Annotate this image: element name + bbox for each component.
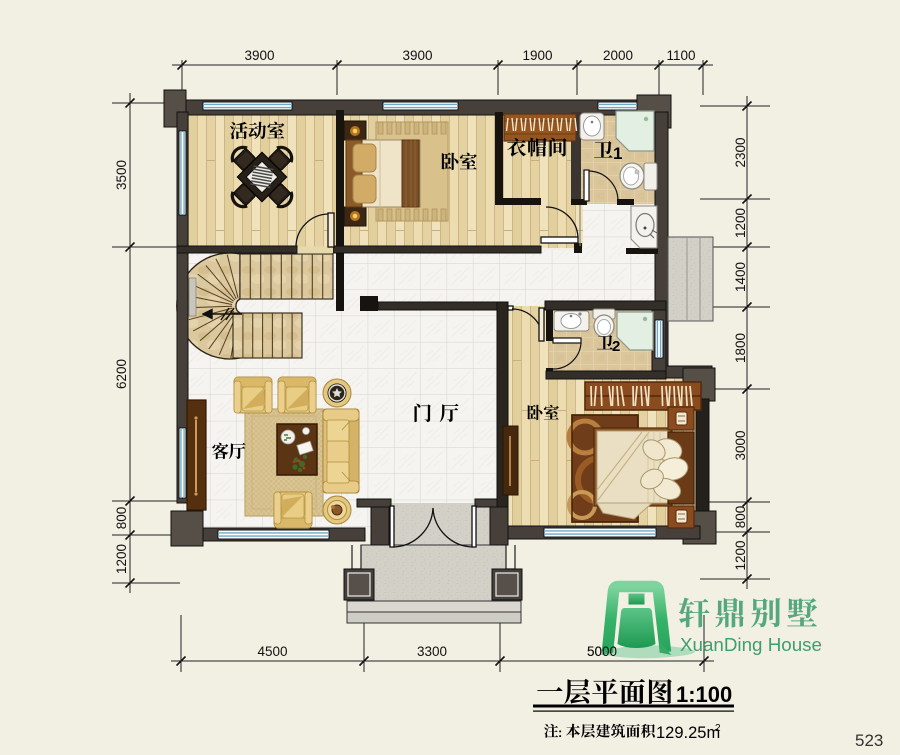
svg-text::: : (558, 725, 562, 740)
svg-text:1200: 1200 (733, 540, 748, 570)
svg-text:6200: 6200 (114, 359, 129, 389)
svg-text:800: 800 (733, 506, 748, 529)
svg-text:2300: 2300 (733, 137, 748, 167)
svg-text:2: 2 (715, 723, 721, 734)
svg-text:1400: 1400 (733, 262, 748, 292)
svg-text:3000: 3000 (733, 430, 748, 460)
svg-text:129.25m: 129.25m (656, 724, 720, 742)
svg-text:1200: 1200 (114, 544, 129, 574)
svg-text:XuanDing House: XuanDing House (680, 634, 822, 655)
svg-text:1100: 1100 (666, 48, 695, 63)
svg-text:2000: 2000 (603, 48, 633, 63)
svg-text:800: 800 (114, 507, 129, 530)
svg-text:1200: 1200 (733, 208, 748, 238)
svg-text:3300: 3300 (417, 644, 447, 659)
svg-text:4500: 4500 (257, 644, 287, 659)
svg-text:2: 2 (612, 338, 620, 355)
svg-text:1800: 1800 (733, 333, 748, 363)
svg-text:3900: 3900 (244, 48, 274, 63)
svg-text:3900: 3900 (402, 48, 432, 63)
svg-text:1:100: 1:100 (676, 682, 732, 707)
svg-text:5000: 5000 (587, 644, 617, 659)
svg-text:523: 523 (855, 731, 883, 750)
svg-text:1: 1 (613, 144, 622, 163)
svg-text:3500: 3500 (114, 160, 129, 190)
svg-text:1900: 1900 (522, 48, 552, 63)
